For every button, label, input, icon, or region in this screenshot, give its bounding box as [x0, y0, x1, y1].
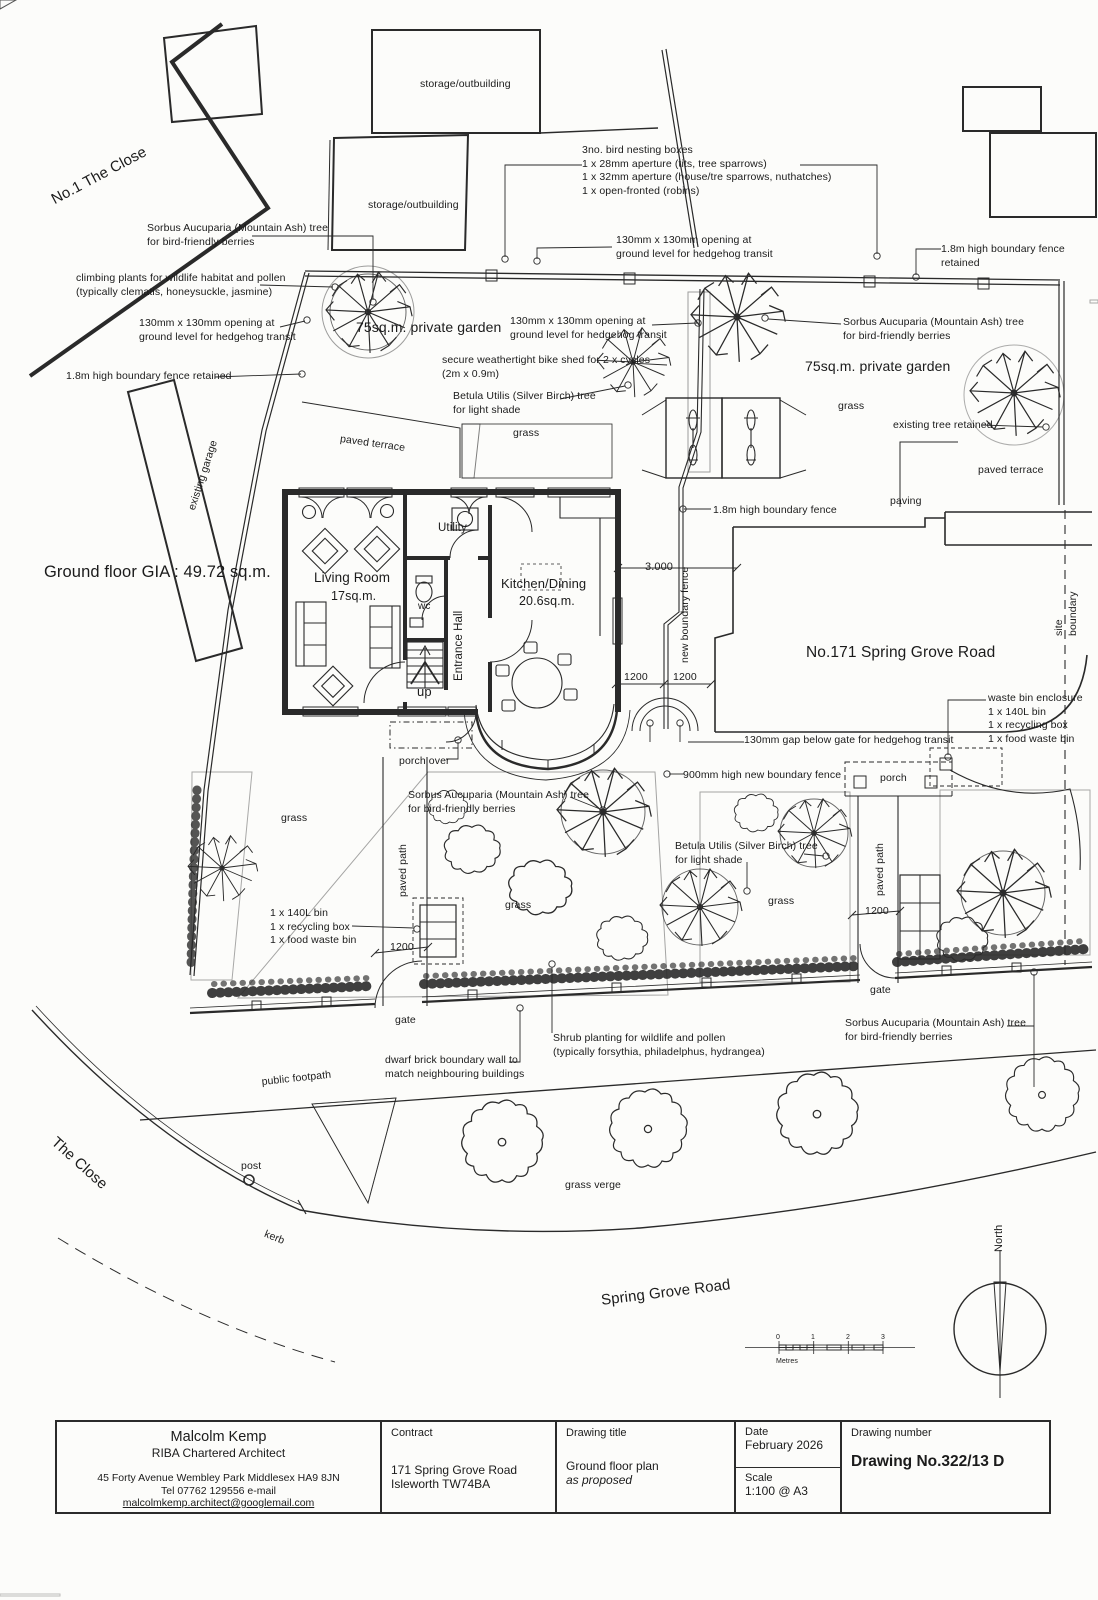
label-dim-1200-c: 1200: [390, 941, 414, 955]
leaders-and-dimensions: [215, 165, 1049, 1087]
label-storage-outbuilding-2: storage/outbuilding: [368, 199, 459, 213]
label-scale-1: 1: [811, 1333, 815, 1342]
label-bird-nesting-boxes: 3no. bird nesting boxes 1 x 28mm apertur…: [582, 144, 832, 199]
label-dim-3000: 3.000: [645, 560, 673, 574]
label-dim-1200-b: 1200: [673, 671, 697, 685]
verge-tree-icons: [462, 1057, 1080, 1182]
drawing-number-cell: Drawing number Drawing No.322/13 D: [840, 1422, 1049, 1512]
title-block: Malcolm Kemp RIBA Chartered Architect 45…: [55, 1420, 1051, 1514]
label-climbing-plants: climbing plants for wildlife habitat and…: [76, 272, 286, 299]
drawing-title-label: Drawing title: [566, 1427, 725, 1439]
roads-and-footpath: [32, 1006, 1096, 1362]
scale-value: 1:100 @ A3: [745, 1484, 831, 1498]
label-living-room-area: 17sq.m.: [331, 588, 376, 604]
architect-cell: Malcolm Kemp RIBA Chartered Architect 45…: [57, 1422, 380, 1512]
architect-address: 45 Forty Avenue Wembley Park Middlesex H…: [66, 1472, 371, 1484]
label-north: North: [992, 1225, 1006, 1252]
contract-cell: Contract 171 Spring Grove Road Isleworth…: [380, 1422, 555, 1512]
label-paved-path-right: paved path: [874, 843, 888, 896]
label-gate-right: gate: [870, 984, 891, 998]
label-paved-path-left: paved path: [397, 844, 411, 897]
label-site-boundary: site boundary: [1053, 591, 1080, 636]
label-private-garden-right: 75sq.m. private garden: [805, 357, 950, 375]
contract-address-line2: Isleworth TW74BA: [391, 1477, 546, 1491]
label-fence-retained-left: 1.8m high boundary fence retained: [66, 370, 232, 384]
existing-garage-outline: [128, 380, 242, 661]
label-up: up: [417, 684, 432, 701]
drawing-title-line1: Ground floor plan: [566, 1459, 725, 1473]
label-shrub-planting: Shrub planting for wildlife and pollen (…: [553, 1032, 765, 1059]
date-scale-cell: Date February 2026 Scale 1:100 @ A3: [734, 1422, 840, 1512]
label-scale-2: 2: [846, 1333, 850, 1342]
label-fence-900: 900mm high new boundary fence: [683, 769, 841, 783]
label-sorbus-right-garden: Sorbus Aucuparia (Mountain Ash) tree for…: [843, 316, 1024, 343]
drawing-title-line2: as proposed: [566, 1473, 725, 1487]
label-fence-retained-right: 1.8m high boundary fence retained: [941, 243, 1098, 270]
label-existing-tree-retained: existing tree retained: [893, 419, 993, 433]
label-scale-3: 3: [881, 1333, 885, 1342]
label-betula-left: Betula Utilis (Silver Birch) tree for li…: [453, 390, 596, 417]
label-ground-floor-gia: Ground floor GIA : 49.72 sq.m.: [44, 562, 271, 583]
label-grass-verge: grass verge: [565, 1179, 621, 1193]
label-bins-left: 1 x 140L bin 1 x recycling box 1 x food …: [270, 907, 356, 948]
label-wc: wc: [418, 600, 430, 613]
label-kitchen-area: 20.6sq.m.: [519, 593, 575, 609]
label-betula-front: Betula Utilis (Silver Birch) tree for li…: [675, 840, 818, 867]
architect-name: Malcolm Kemp: [66, 1429, 371, 1445]
label-bike-shed: secure weathertight bike shed for 2 x cy…: [442, 354, 650, 381]
date-cell: Date February 2026: [736, 1422, 840, 1467]
label-post: post: [241, 1160, 261, 1174]
drawing-title-cell: Drawing title Ground floor plan as propo…: [555, 1422, 734, 1512]
label-utility: Utility: [438, 521, 467, 536]
drawing-number-value: Drawing No.322/13 D: [851, 1453, 1040, 1471]
label-sorbus-front: Sorbus Aucuparia (Mountain Ash) tree for…: [408, 789, 589, 816]
label-new-boundary-fence: new boundary fence: [679, 567, 693, 663]
label-grass-left-garden: grass: [513, 427, 539, 441]
scale-label: Scale: [745, 1472, 831, 1484]
scale-cell: Scale 1:100 @ A3: [736, 1467, 840, 1512]
label-living-room: Living Room: [314, 569, 390, 587]
drawing-number-label: Drawing number: [851, 1427, 1040, 1439]
label-hedgehog-opening-mid: 130mm x 130mm opening at ground level fo…: [510, 315, 667, 342]
date-label: Date: [745, 1426, 831, 1438]
label-grass-front-right: grass: [768, 895, 794, 909]
label-scale-metres: Metres: [776, 1357, 798, 1366]
label-porch-right: porch: [880, 772, 907, 786]
label-storage-outbuilding-top: storage/outbuilding: [420, 78, 511, 92]
architect-role: RIBA Chartered Architect: [66, 1446, 371, 1460]
boundary-fences: [190, 270, 1092, 1013]
label-dim-1200-a: 1200: [624, 671, 648, 685]
label-entrance-hall: Entrance Hall: [452, 611, 467, 681]
drawing-sheet: No.1 The Closestorage/outbuildingstorage…: [0, 0, 1098, 1600]
label-grass-front-left: grass: [281, 812, 307, 826]
label-grass-right-garden: grass: [838, 400, 864, 414]
label-private-garden-left: 75sq.m. private garden: [356, 318, 501, 336]
label-paving: paving: [890, 495, 922, 509]
label-sorbus-bottom: Sorbus Aucuparia (Mountain Ash) tree for…: [845, 1017, 1026, 1044]
date-value: February 2026: [745, 1438, 831, 1452]
planting: [188, 266, 1090, 1203]
label-hedgehog-gap-gate: 130mm gap below gate for hedgehog transi…: [744, 734, 954, 748]
architect-contact: Tel 07762 129556 e-mail malcolmkemp.arch…: [66, 1485, 371, 1509]
label-gate-left: gate: [395, 1014, 416, 1028]
label-hedgehog-opening-top: 130mm x 130mm opening at ground level fo…: [616, 234, 773, 261]
architect-tel: Tel 07762 129556 e-mail: [161, 1485, 276, 1497]
architect-email: malcolmkemp.architect@googlemail.com: [123, 1497, 315, 1509]
label-dim-1200-d: 1200: [865, 905, 889, 919]
label-no171: No.171 Spring Grove Road: [806, 643, 995, 663]
label-kitchen-dining: Kitchen/Dining: [501, 576, 586, 593]
label-hedgehog-opening-left: 130mm x 130mm opening at ground level fo…: [139, 317, 296, 344]
label-sorbus-top-left: Sorbus Aucuparia (Mountain Ash) tree for…: [147, 222, 328, 249]
north-arrow-icon: [954, 1250, 1046, 1398]
label-scale-0: 0: [776, 1333, 780, 1342]
label-grass-front-mid: grass: [505, 899, 531, 913]
neighbour-house-171: [632, 512, 1092, 870]
label-dwarf-wall: dwarf brick boundary wall to match neigh…: [385, 1054, 524, 1081]
contract-address-line1: 171 Spring Grove Road: [391, 1463, 546, 1477]
contract-label: Contract: [391, 1427, 546, 1439]
label-paved-terrace-right: paved terrace: [978, 464, 1044, 478]
label-porch-over: porch over: [399, 755, 450, 769]
label-waste-bin-enclosure: waste bin enclosure 1 x 140L bin 1 x rec…: [988, 692, 1083, 747]
label-fence-18-mid: 1.8m high boundary fence: [713, 504, 837, 518]
scale-bar: [745, 1341, 915, 1354]
